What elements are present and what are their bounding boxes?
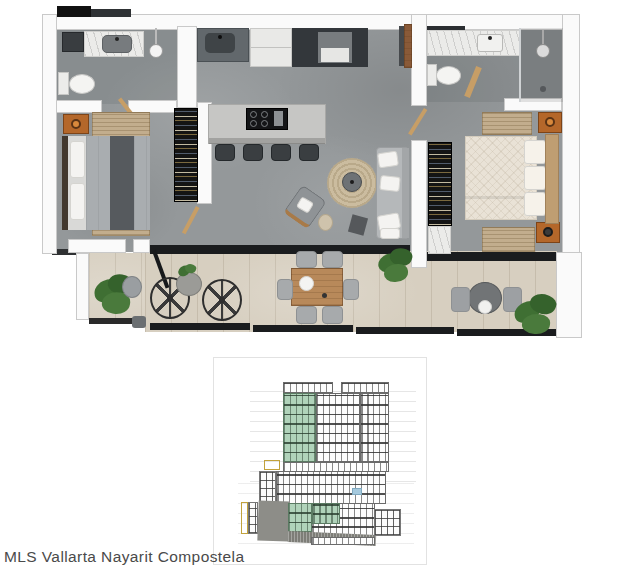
toilet-tank-1 [58,72,69,95]
egg-ottoman [318,214,333,231]
sofa-pillow [379,175,400,192]
oven-stack [250,28,292,67]
shower-drain-dot [540,86,546,92]
pillow [70,141,85,178]
area-rug-bed2 [482,112,532,135]
dining-table [291,268,343,306]
plant-on-table [178,264,198,282]
burner-icon [261,111,268,118]
table-lamp-icon [71,119,81,129]
drum-table-dot [350,180,354,184]
toilet-bowl-1 [69,74,95,94]
area-rug-bed2 [482,227,535,252]
palm-plant [512,292,558,336]
bistro-chair [451,287,470,312]
wall-entry-pillar [133,239,150,253]
building-elevation-image[interactable] [213,357,427,565]
wall-terrace-right [556,252,582,338]
dining-chair [296,306,317,324]
faucet-dot [218,35,222,39]
sofa-back [402,148,409,238]
shower-glass-line [519,28,521,102]
bar-stool [215,144,235,161]
papasan-chair [202,279,242,321]
dining-chair [296,251,317,268]
stair-tick-column [248,502,258,534]
pendant-cord [155,28,157,45]
railing-segment [356,327,454,334]
lower-green-block [288,503,312,532]
sofa-pillow [380,228,400,239]
wardrobe-closet-1 [174,108,198,202]
wall-center-top [411,14,427,106]
annotation-mark [241,502,248,534]
listing-caption: MLS Vallarta Nayarit Compostela [4,548,244,566]
bar-stool [299,144,319,161]
potted-plant [376,248,416,284]
tower-green-column [283,393,316,462]
faucet-dot [488,36,492,40]
pillow [70,183,85,220]
vanity-counter-2 [427,30,521,56]
tower-roof-block [283,382,333,393]
railing-segment [150,323,250,330]
wardrobe-closet-2 [428,142,452,226]
ac-unit-block [57,6,91,17]
burner-icon [261,120,268,127]
pot-stool [122,276,142,298]
solid-gray-block [257,500,289,541]
dining-chair [322,306,343,324]
dresser [428,226,451,254]
railing-segment [253,325,353,332]
ac-unit-block [91,9,131,17]
open-door-wood [404,24,412,68]
annotation-mark [264,460,280,470]
dining-chair [322,251,343,268]
right-annex [374,509,401,536]
faucet-dot [115,37,119,41]
glass-door-track-left [150,245,410,254]
base-tick-row [311,537,375,545]
wall-terrace-left [76,253,89,320]
dining-chair [343,279,359,300]
decor-ball [478,300,492,314]
wall-right [562,14,580,260]
plate [299,276,314,291]
podium-rows [276,471,386,504]
burner-icon [250,111,257,118]
mirror-cabinet [62,32,84,52]
refrigerator-door [321,48,349,62]
blue-mark [352,488,362,495]
burner-icon [250,120,257,127]
tower-roof-block [341,382,389,393]
tower-mid-column [316,393,360,462]
tower-right-column [360,393,389,462]
table-decor-dot [322,293,327,298]
sofa-pillow [377,151,399,169]
bar-stool [271,144,291,161]
pillow [524,192,546,216]
bar-stool [243,144,263,161]
lower-green-block [312,503,340,524]
wall-bottom-left [68,239,126,253]
dining-chair [277,279,293,300]
table-lamp-icon [545,117,555,127]
table-lamp-icon [543,227,553,237]
wall-left [42,14,57,254]
bed2-headboard [545,134,559,224]
toilet-bowl-2 [436,66,461,85]
pendant-light-icon [149,44,163,58]
pillow [524,140,546,164]
cooktop-controls [274,111,283,126]
bed1-runner [110,136,134,230]
listing-photo-page: MLS Vallarta Nayarit Compostela [0,0,639,588]
wall-bath1-kitchen [177,26,197,108]
pillow [524,166,546,190]
floor-plan-image[interactable] [0,0,639,350]
